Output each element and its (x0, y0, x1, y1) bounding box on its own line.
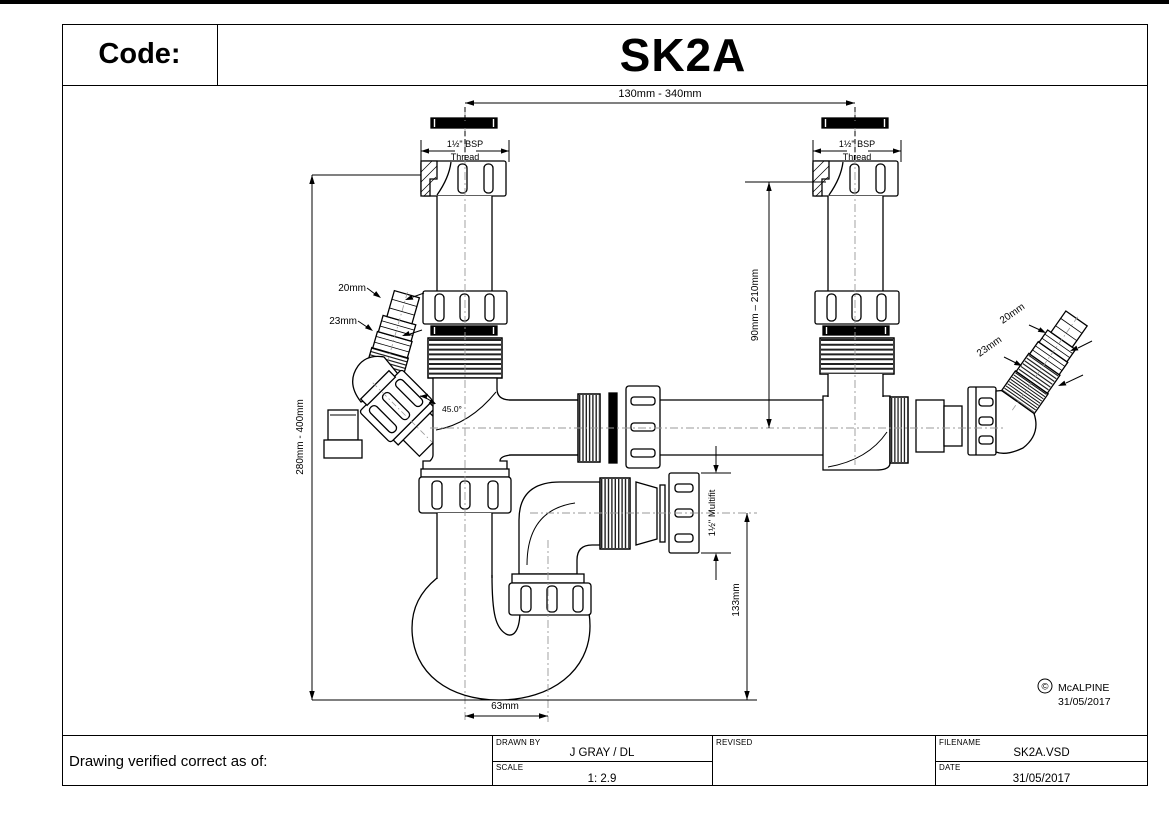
dim-angle: 45.0° (442, 404, 462, 414)
dim-bsp-left-1: 1½" BSP (447, 139, 483, 149)
footer-divider (935, 761, 1148, 762)
scale-label: SCALE (496, 763, 523, 772)
dim-trap-depth: 133mm (731, 583, 742, 616)
verified-label: Drawing verified correct as of: (69, 753, 267, 770)
horizontal-pipe (506, 386, 823, 468)
left-sink-washer (431, 118, 497, 128)
drawn-by-label: DRAWN BY (496, 738, 540, 747)
trap-outlet-elbow (519, 482, 600, 574)
dim-bsp-left-2: Thread (451, 152, 480, 162)
slip-adapter (916, 400, 944, 452)
footer-divider (492, 761, 712, 762)
date-value: 31/05/2017 (935, 773, 1148, 785)
blanking-plug (324, 410, 362, 458)
right-hose-23mm: 23mm (975, 334, 1004, 359)
dim-bsp-right-2: Thread (843, 152, 872, 162)
copyright-name: McALPINE (1058, 682, 1109, 694)
right-o-ring (823, 326, 889, 335)
left-hose-23mm: 23mm (329, 316, 357, 327)
filename-label: FILENAME (939, 738, 981, 747)
dim-outlet-multifit: 1½" Multifit (707, 489, 718, 536)
outlet-washer (636, 482, 657, 545)
right-tee (823, 396, 962, 470)
dim-right-height: 90mm – 210mm (750, 269, 761, 341)
verified-cell: Drawing verified correct as of: (62, 736, 492, 786)
dim-bsp-right-1: 1½" BSP (839, 139, 875, 149)
drawing-sheet: Code: SK2A (0, 0, 1169, 826)
dim-top-width: 130mm - 340mm (618, 88, 701, 100)
filename-value: SK2A.VSD (935, 747, 1148, 759)
dim-left-height: 280mm - 400mm (295, 399, 306, 475)
left-hose-20mm: 20mm (338, 283, 366, 294)
footer-separator (712, 736, 713, 786)
drawn-by-value: J GRAY / DL (492, 747, 712, 759)
dim-trap-width: 63mm (491, 701, 519, 712)
copyright: © McALPINE 31/05/2017 (1038, 679, 1111, 708)
pipework-drawing: 130mm - 340mm 1½" BSP Thread 1½" BSP Thr… (0, 0, 1169, 826)
copyright-icon: © (1042, 682, 1049, 693)
scale-value: 1: 2.9 (492, 773, 712, 785)
copyright-date: 31/05/2017 (1058, 696, 1111, 708)
revised-label: REVISED (716, 738, 753, 747)
p-trap (412, 469, 699, 700)
right-hose-20mm: 20mm (998, 301, 1027, 326)
footer-title-block: Drawing verified correct as of: DRAWN BY… (62, 735, 1148, 786)
date-label: DATE (939, 763, 961, 772)
left-o-ring (431, 326, 497, 335)
